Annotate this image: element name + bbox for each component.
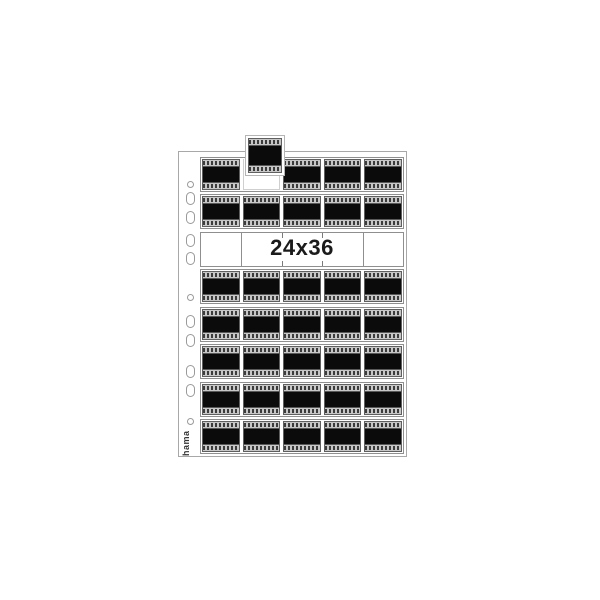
binder-hole [186,315,195,328]
film-negative [365,391,401,408]
frame-perforation-bottom [249,166,281,172]
format-label: 24x36 [270,237,334,259]
binder-hole [186,234,195,247]
film-frame [283,159,321,190]
negative-sleeve-sheet: hama 24x36 [178,151,407,457]
frame-perforation-bottom [244,295,280,301]
film-negative [203,428,239,445]
film-negative [244,203,280,220]
film-negative [325,203,361,220]
frame-perforation-bottom [244,445,280,451]
frame-perforation-bottom [244,333,280,339]
binder-hole [186,211,195,224]
film-strip-row [200,269,404,304]
film-negative [203,353,239,370]
film-frame [283,346,321,377]
frame-perforation-bottom [325,445,361,451]
film-frame [243,421,281,452]
film-strip-row [200,419,404,454]
film-frame [364,271,402,302]
film-frame [202,384,240,415]
film-negative [244,316,280,333]
frame-perforation-bottom [365,370,401,376]
film-frame [243,309,281,340]
film-negative [284,166,320,183]
film-negative [365,428,401,445]
frame-perforation-bottom [365,220,401,226]
film-frame [202,196,240,227]
film-negative [325,391,361,408]
film-negative [203,166,239,183]
film-strip-row [200,382,404,417]
frame-perforation-bottom [203,183,239,189]
film-frame [324,346,362,377]
film-negative [365,316,401,333]
film-frame [202,309,240,340]
frame-perforation-bottom [244,220,280,226]
film-negative [284,353,320,370]
film-negative [284,316,320,333]
film-frame [324,309,362,340]
film-negative [325,353,361,370]
film-negative [284,391,320,408]
frame-perforation-bottom [203,220,239,226]
frame-perforation-bottom [244,370,280,376]
film-frame [202,271,240,302]
film-negative [365,203,401,220]
film-strip-row [200,344,404,379]
film-frame [364,346,402,377]
film-frame [283,271,321,302]
frame-perforation-bottom [203,333,239,339]
film-frame [243,196,281,227]
film-negative [284,428,320,445]
binder-hole [187,418,194,425]
frame-perforation-bottom [284,183,320,189]
film-frame [202,159,240,190]
film-frame [364,384,402,415]
film-negative [365,278,401,295]
film-negative [244,391,280,408]
film-negative [203,391,239,408]
film-frame [283,309,321,340]
frame-perforation-bottom [284,295,320,301]
film-frame [324,196,362,227]
frame-perforation-bottom [325,183,361,189]
product-photo: hama 24x36 [0,0,600,600]
binder-hole [186,252,195,265]
film-frame [324,159,362,190]
film-negative [284,278,320,295]
film-frame [364,196,402,227]
film-negative [249,145,281,166]
frame-perforation-bottom [203,370,239,376]
film-frame [364,159,402,190]
frame-perforation-bottom [325,408,361,414]
film-frame [202,346,240,377]
column-tick [282,261,283,266]
pocket-grid: 24x36 [200,157,404,454]
film-negative [325,166,361,183]
film-strip-row [200,307,404,342]
hama-logo: hama [180,429,193,456]
binder-hole [186,384,195,397]
film-negative [325,278,361,295]
film-frame [283,196,321,227]
film-frame [364,309,402,340]
film-negative [203,203,239,220]
format-label-band: 24x36 [200,232,404,267]
frame-perforation-bottom [365,295,401,301]
film-negative [244,428,280,445]
protruding-film-frame [245,135,285,176]
film-negative [203,316,239,333]
frame-perforation-bottom [284,370,320,376]
film-negative [244,353,280,370]
frame-perforation-bottom [284,445,320,451]
frame-perforation-bottom [325,370,361,376]
film-frame [243,271,281,302]
column-divider [241,233,242,266]
binder-hole [186,192,195,205]
film-strip-row [200,157,404,192]
frame-perforation-bottom [244,408,280,414]
film-negative [203,278,239,295]
binder-hole [187,294,194,301]
film-frame [243,384,281,415]
film-frame [243,346,281,377]
film-negative [284,203,320,220]
frame-perforation-bottom [365,408,401,414]
film-frame [248,138,282,173]
film-frame [202,421,240,452]
frame-perforation-bottom [203,445,239,451]
column-tick [322,261,323,266]
film-negative [365,353,401,370]
film-negative [365,166,401,183]
film-frame [283,384,321,415]
frame-perforation-bottom [325,220,361,226]
film-negative [244,278,280,295]
film-negative [325,316,361,333]
frame-perforation-bottom [325,295,361,301]
frame-perforation-bottom [284,220,320,226]
binder-hole [186,334,195,347]
frame-perforation-bottom [365,333,401,339]
frame-perforation-bottom [284,333,320,339]
binder-hole [186,365,195,378]
frame-perforation-bottom [203,295,239,301]
film-negative [325,428,361,445]
film-frame [324,271,362,302]
film-frame [364,421,402,452]
film-frame [283,421,321,452]
film-frame [324,421,362,452]
frame-perforation-bottom [203,408,239,414]
column-divider [363,233,364,266]
frame-perforation-bottom [284,408,320,414]
frame-perforation-bottom [365,183,401,189]
frame-perforation-bottom [365,445,401,451]
binder-hole [187,181,194,188]
film-strip-row [200,194,404,229]
film-frame [324,384,362,415]
frame-perforation-bottom [325,333,361,339]
